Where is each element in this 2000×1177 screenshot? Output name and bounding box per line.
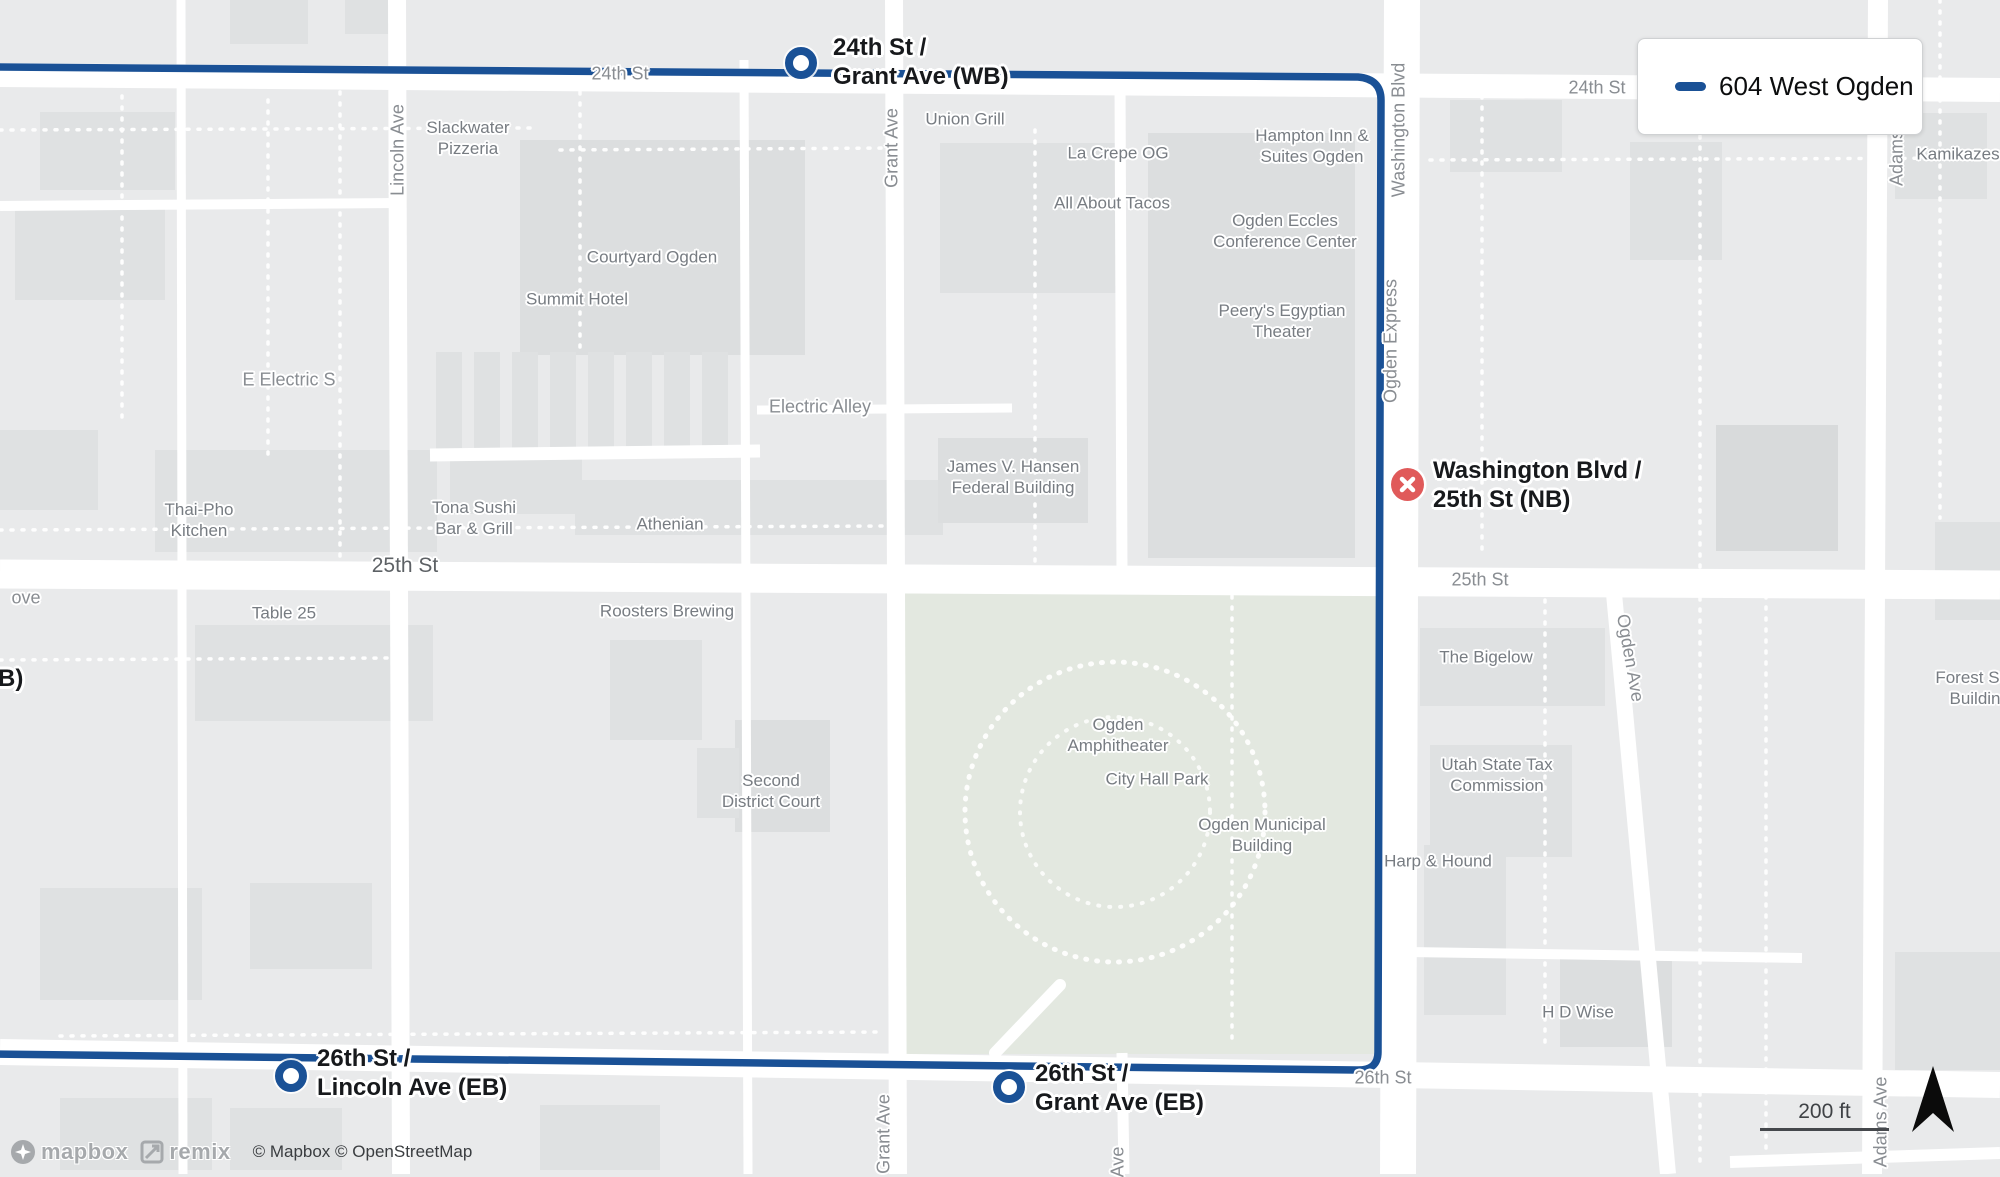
base-map	[0, 0, 2000, 1174]
scale-bar-line	[1760, 1128, 1889, 1131]
remix-logo-icon	[140, 1140, 164, 1164]
stop-marker-26th-st-grant-ave-eb[interactable]	[993, 1071, 1025, 1103]
error-stop-marker-washington-blvd-25th-st-nb[interactable]	[1391, 468, 1424, 501]
stop-marker-26th-st-lincoln-ave-eb[interactable]	[275, 1060, 307, 1092]
route-legend-label: 604 West Ogden	[1719, 71, 1914, 102]
copyright-text[interactable]: © Mapbox © OpenStreetMap	[253, 1142, 473, 1162]
scale-bar: 200 ft	[1760, 1100, 1889, 1131]
north-arrow-icon[interactable]	[1905, 1066, 1961, 1134]
mapbox-wordmark: mapbox	[41, 1139, 128, 1165]
remix-logo[interactable]: remix	[140, 1139, 230, 1165]
attribution-bar: mapbox remix © Mapbox © OpenStreetMap	[10, 1138, 472, 1166]
remix-wordmark: remix	[169, 1139, 230, 1165]
mapbox-logo-icon	[10, 1139, 36, 1165]
mapbox-logo[interactable]: mapbox	[10, 1139, 128, 1165]
x-icon	[1399, 476, 1416, 493]
city-hall-park-area	[905, 592, 1385, 1054]
stop-marker-24th-st-grant-ave-wb[interactable]	[785, 47, 817, 79]
route-legend: 604 West Ogden	[1637, 38, 1923, 135]
route-swatch	[1675, 82, 1706, 91]
map-canvas[interactable]: 24th St24th St25th St25th St26th StLinco…	[0, 0, 2000, 1174]
scale-bar-label: 200 ft	[1760, 1100, 1889, 1124]
